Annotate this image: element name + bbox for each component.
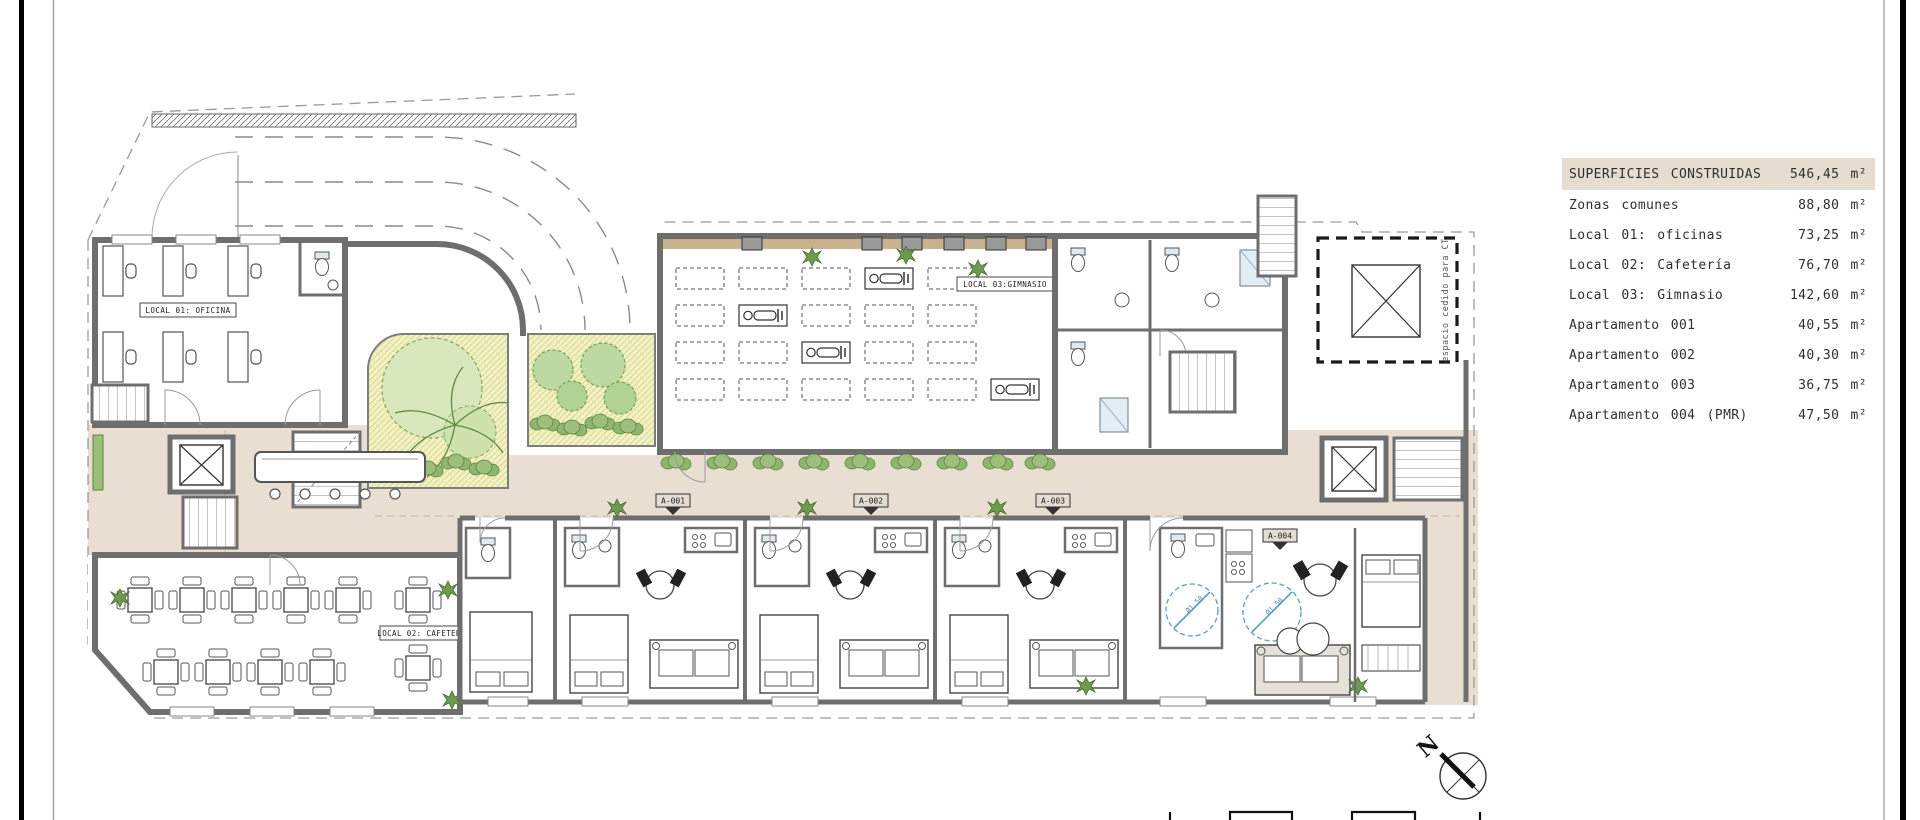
- gym-bathrooms: [1055, 236, 1285, 452]
- areas-table-row: Local 01: oficinas 73,25 m²: [1562, 220, 1875, 250]
- north-label: N: [1412, 730, 1444, 763]
- svg-text:A-003: A-003: [1041, 497, 1065, 506]
- north-arrow: N: [1412, 730, 1486, 799]
- label-local01: LOCAL 01: OFICINA: [145, 306, 230, 315]
- driveway: [152, 114, 630, 330]
- svg-text:A-001: A-001: [661, 497, 685, 506]
- scale-bar: [1170, 812, 1480, 820]
- areas-table: SUPERFICIES CONSTRUIDAS 546,45 m² Zonas …: [1562, 158, 1875, 430]
- label-local03: LOCAL 03:GIMNASIO: [963, 280, 1047, 289]
- areas-table-row: Apartamento 003 36,75 m²: [1562, 370, 1875, 400]
- areas-table-row: Local 03: Gimnasio 142,60 m²: [1562, 280, 1875, 310]
- areas-table-row: Local 02: Cafetería 76,70 m²: [1562, 250, 1875, 280]
- areas-table-row: Apartamento 001 40,55 m²: [1562, 310, 1875, 340]
- label-local02: LOCAL 02: CAFETERIA: [377, 629, 470, 638]
- areas-header-label: SUPERFICIES CONSTRUIDAS: [1569, 167, 1761, 182]
- drawing-sheet: LOCAL 01: OFICINA: [0, 0, 1920, 820]
- svg-text:A-002: A-002: [859, 497, 883, 506]
- areas-table-row: Apartamento 004 (PMR) 47,50 m²: [1562, 400, 1875, 430]
- ct-note: espacio cedido para CT: [1441, 238, 1451, 362]
- areas-table-row: Apartamento 002 40,30 m²: [1562, 340, 1875, 370]
- areas-table-header: SUPERFICIES CONSTRUIDAS 546,45 m²: [1562, 158, 1875, 190]
- areas-header-value: 546,45 m²: [1790, 167, 1867, 182]
- gym-local03: LOCAL 03:GIMNASIO: [660, 236, 1073, 482]
- svg-text:A-004: A-004: [1268, 532, 1292, 541]
- apartments: Ø1,50 Ø1,50: [460, 494, 1425, 706]
- areas-table-row: Zonas comunes 88,80 m²: [1562, 190, 1875, 220]
